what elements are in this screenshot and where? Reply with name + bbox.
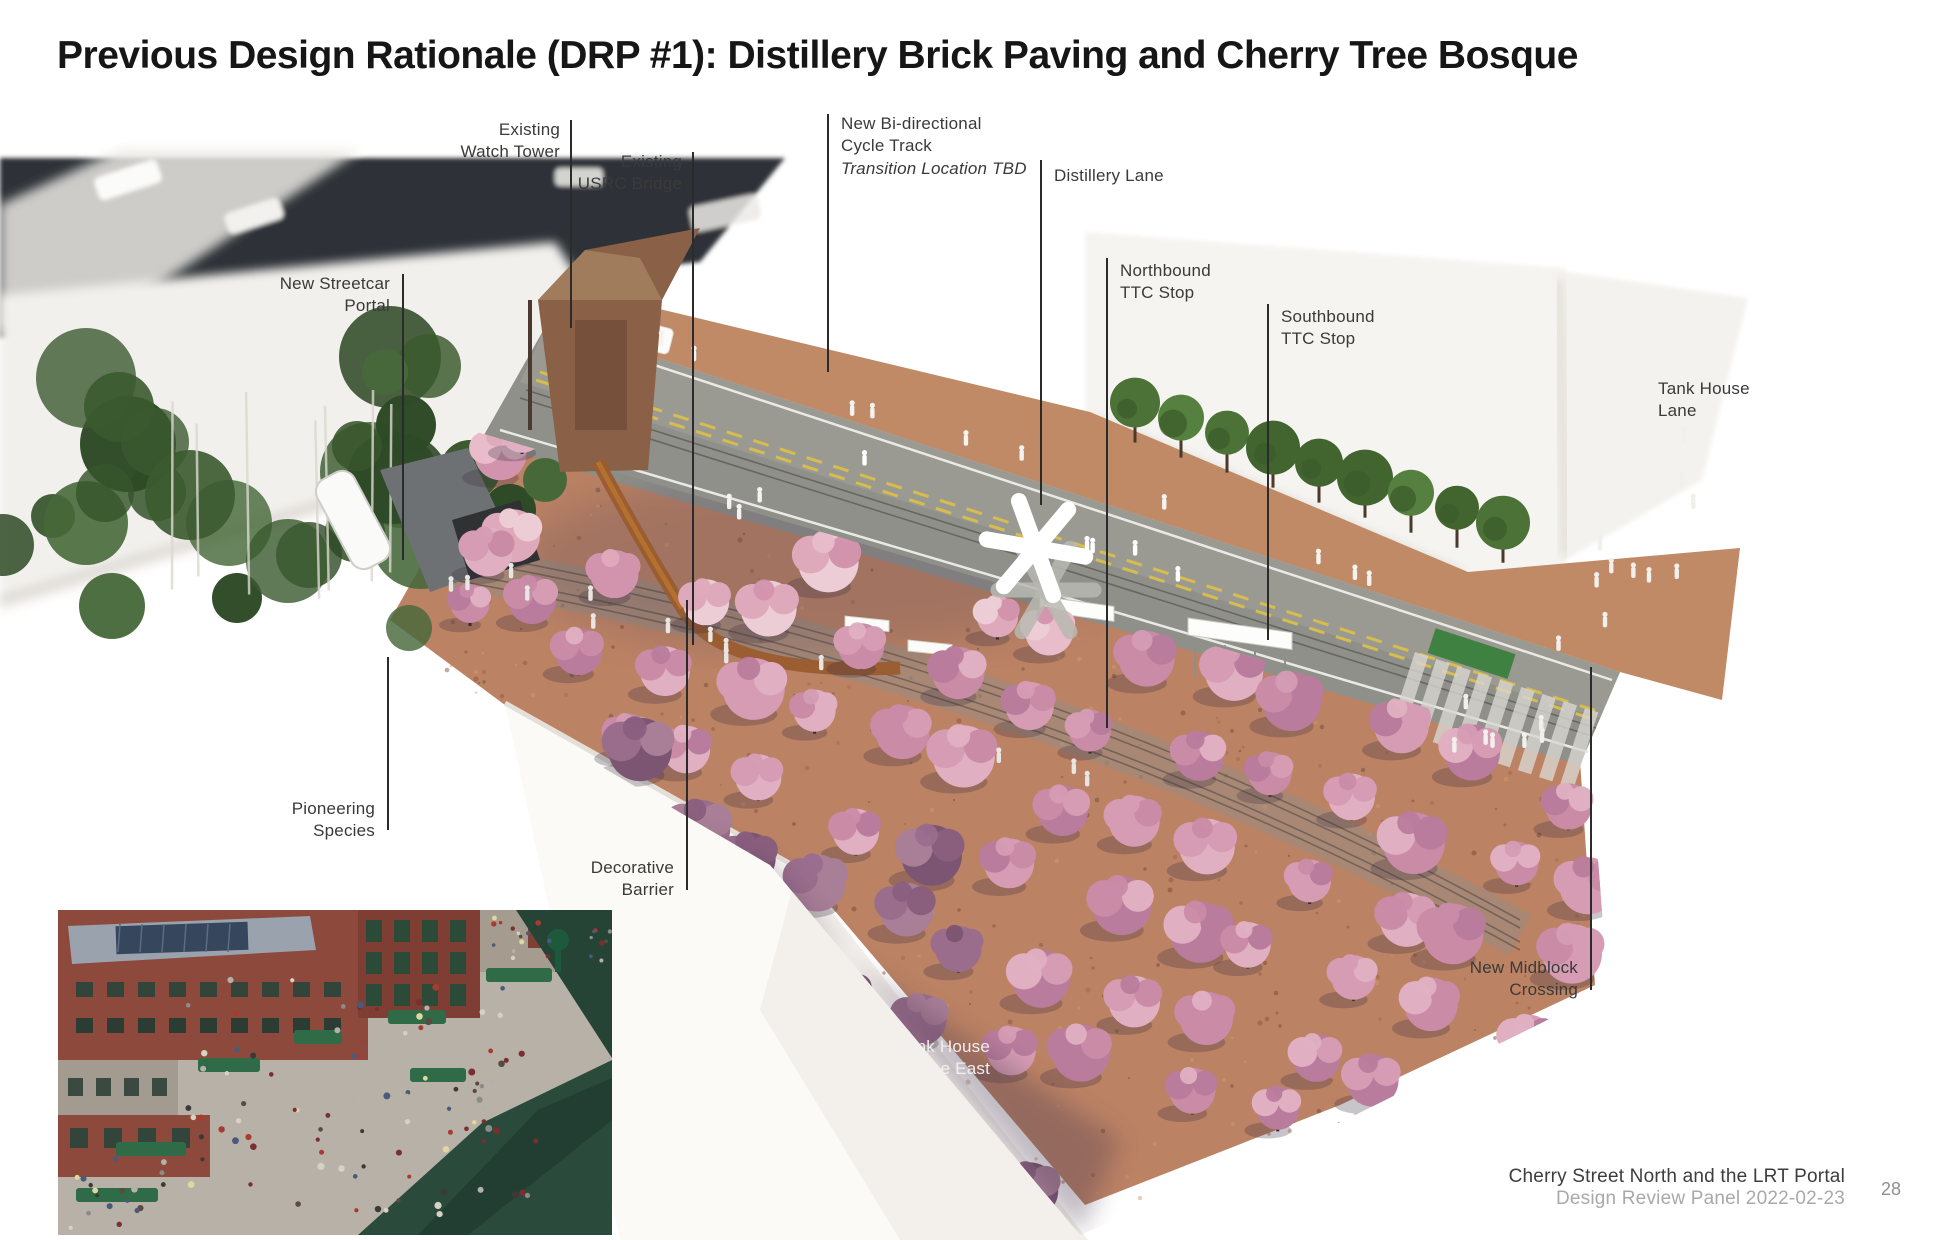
callout-new-streetcar-portal: New Streetcar Portal: [280, 273, 390, 318]
leader-southbound-ttc: [1267, 304, 1269, 640]
leader-pioneering-species: [387, 657, 389, 830]
callout-decorative-barrier: Decorative Barrier: [591, 857, 674, 902]
footer-panel-date: Design Review Panel 2022-02-23: [1509, 1188, 1845, 1210]
leader-streetcar-portal: [402, 274, 404, 560]
leader-distillery-lane: [1040, 160, 1042, 505]
callout-southbound-ttc-stop: Southbound TTC Stop: [1281, 306, 1375, 351]
leader-decorative-barrier: [686, 600, 688, 890]
leader-cycle-track: [827, 114, 829, 372]
callout-cycle-track: New Bi-directional Cycle Track Transitio…: [841, 113, 1027, 180]
callout-tank-house-lane: Tank House Lane: [1658, 378, 1750, 423]
callout-existing-watch-tower: Existing Watch Tower: [460, 119, 560, 164]
callout-northbound-ttc-stop: Northbound TTC Stop: [1120, 260, 1211, 305]
inset-photo-distillery: [58, 910, 612, 1235]
callout-distillery-lane: Distillery Lane: [1054, 165, 1164, 187]
callout-pioneering-species: Pioneering Species: [292, 798, 375, 843]
callout-new-midblock-crossing: New Midblock Crossing: [1470, 957, 1578, 1002]
leader-watch-tower: [570, 120, 572, 328]
footer-project-title: Cherry Street North and the LRT Portal: [1509, 1166, 1845, 1188]
callout-tank-house-lane-east: Tank House Lane East: [898, 1036, 990, 1081]
leader-usrc-bridge: [692, 152, 694, 645]
page-title: Previous Design Rationale (DRP #1): Dist…: [57, 34, 1578, 78]
footer: Cherry Street North and the LRT Portal D…: [1509, 1166, 1845, 1210]
slide: Previous Design Rationale (DRP #1): Dist…: [0, 0, 1941, 1240]
callout-existing-usrc-bridge: Existing USRC Bridge: [578, 151, 682, 196]
leader-northbound-ttc: [1106, 258, 1108, 728]
leader-midblock-crossing: [1590, 667, 1592, 990]
page-number: 28: [1881, 1179, 1901, 1200]
